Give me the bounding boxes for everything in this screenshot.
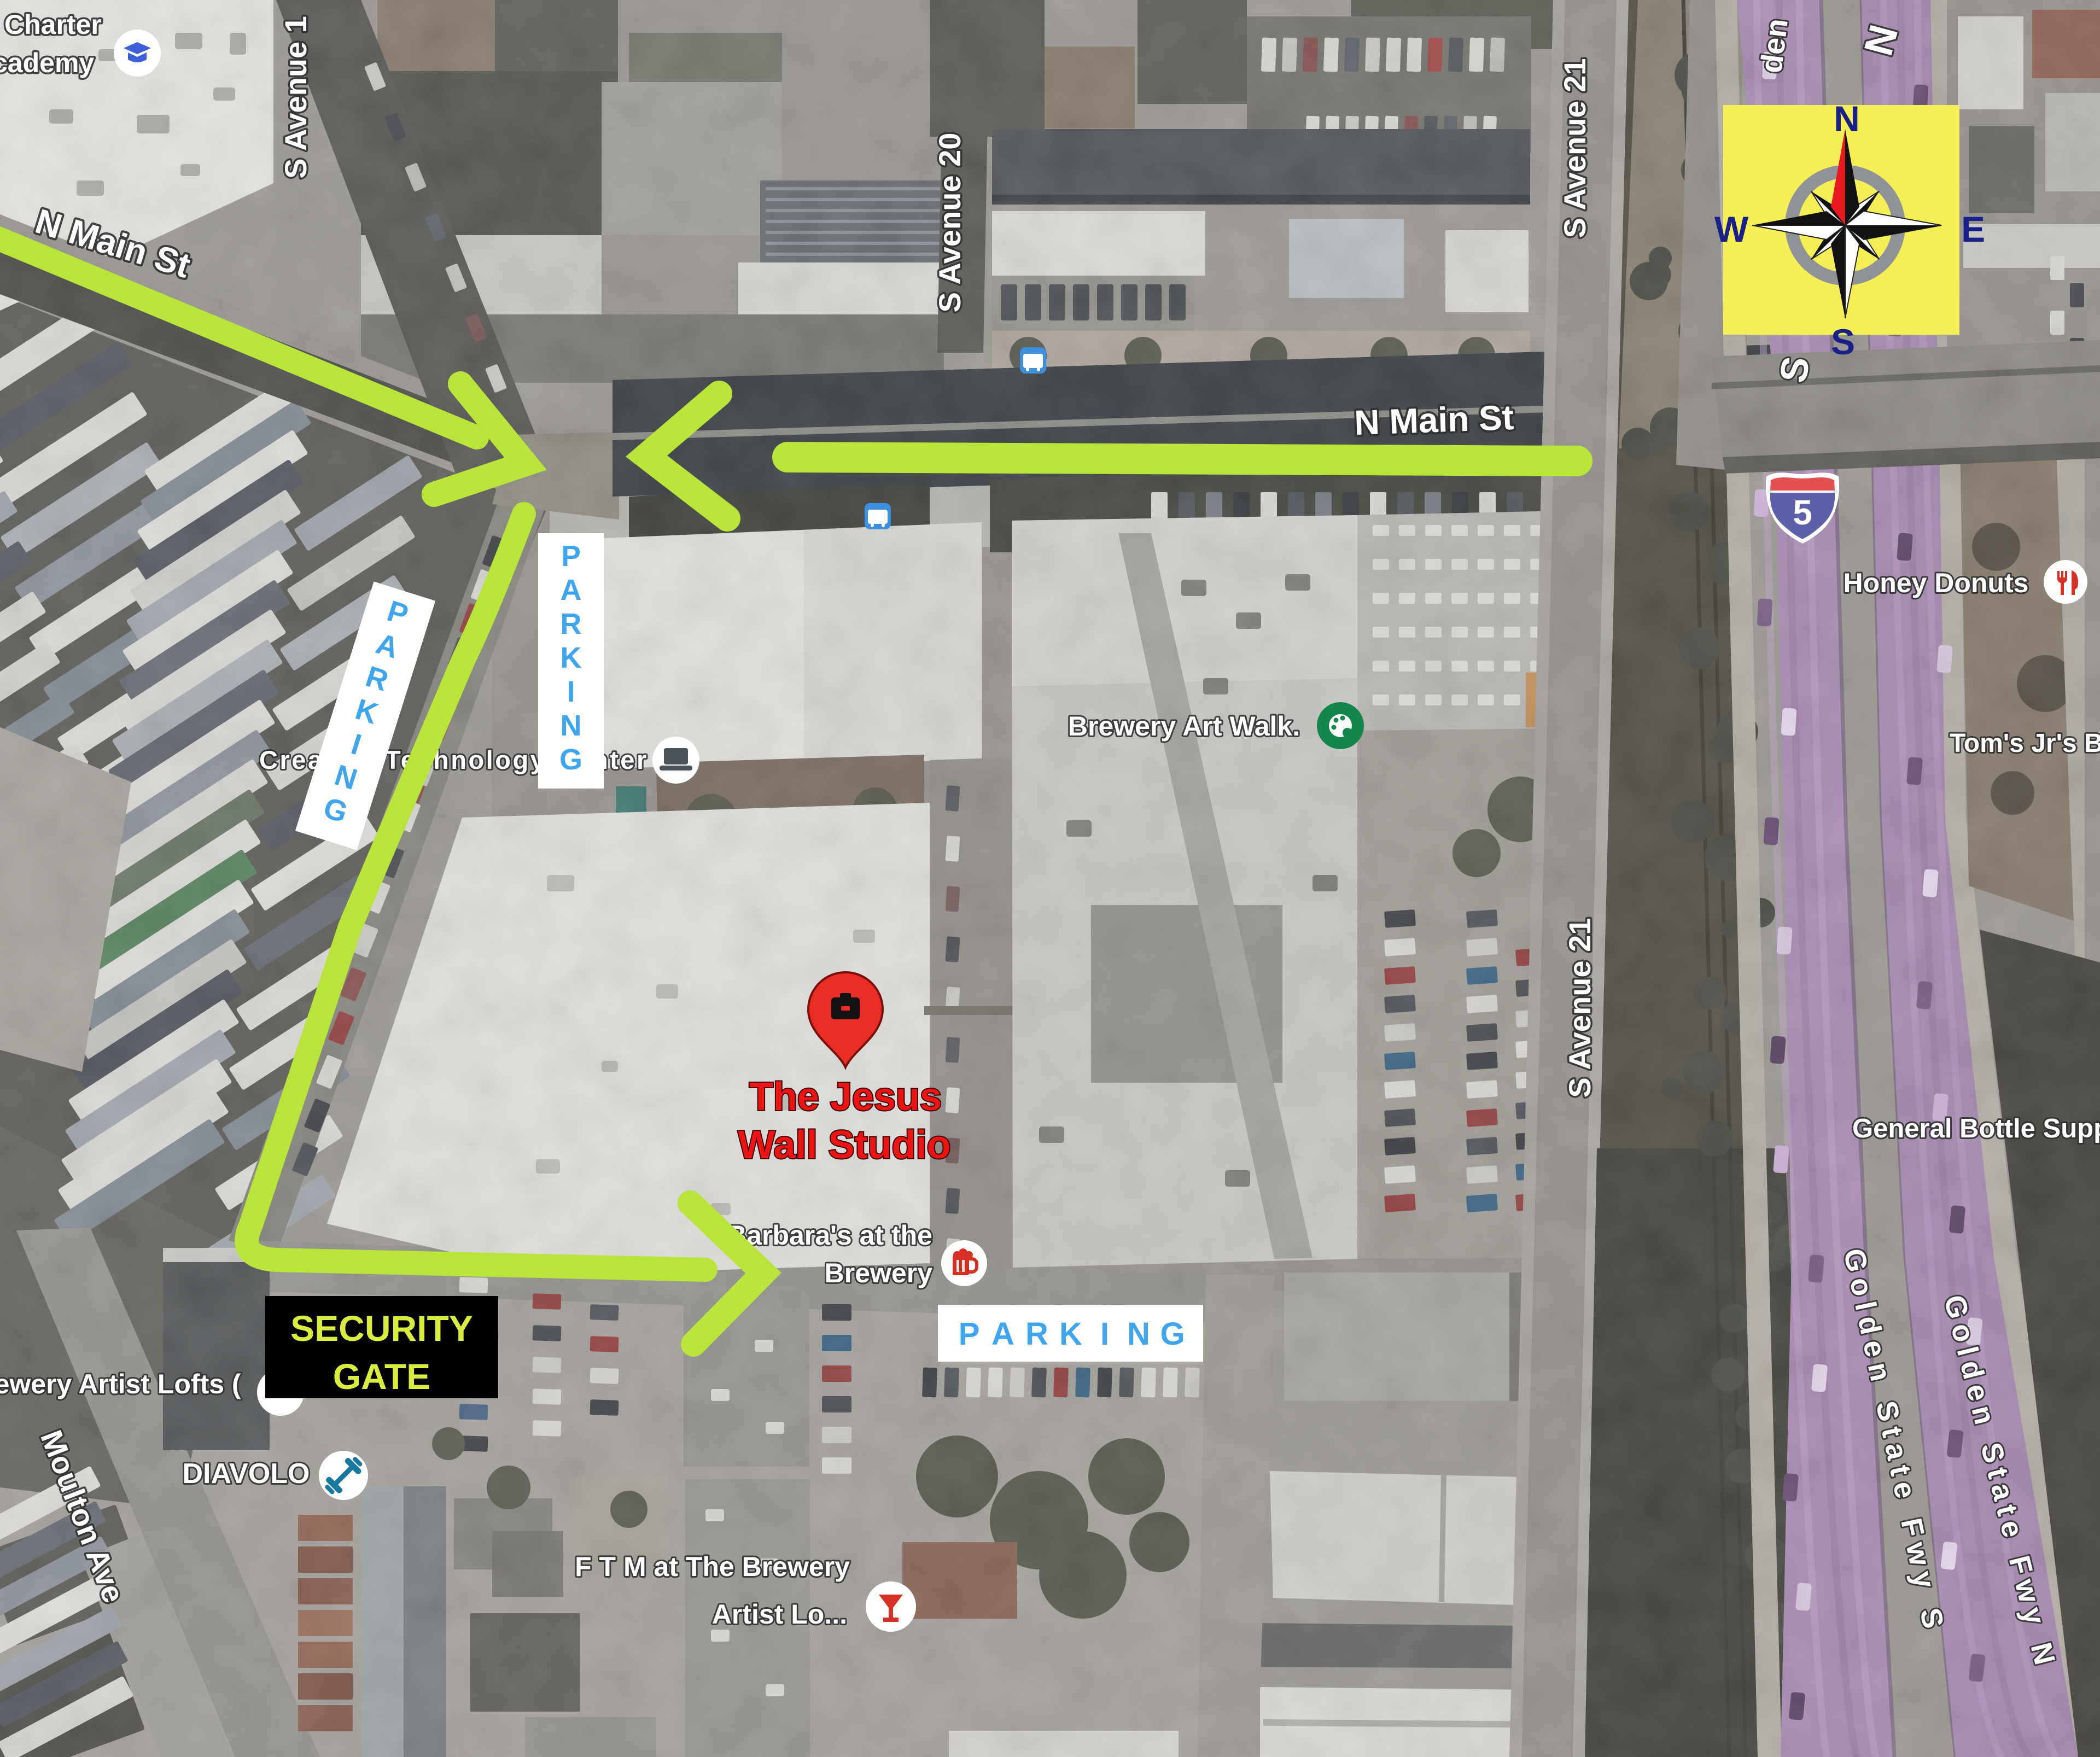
svg-text:N: N bbox=[1127, 1316, 1150, 1352]
svg-text:F T M at The Brewery: F T M at The Brewery bbox=[575, 1551, 850, 1582]
svg-text:General Bottle Supp: General Bottle Supp bbox=[1852, 1114, 2100, 1143]
svg-text:E: E bbox=[1961, 209, 1985, 249]
svg-text:S Avenue 21: S Avenue 21 bbox=[1562, 918, 1597, 1098]
svg-text:Charter: Charter bbox=[4, 9, 102, 40]
svg-text:A: A bbox=[991, 1316, 1014, 1352]
svg-text:P: P bbox=[561, 540, 581, 573]
svg-text:I: I bbox=[1100, 1316, 1109, 1352]
svg-text:Honey Donuts: Honey Donuts bbox=[1844, 568, 2029, 598]
svg-text:Artist Lo...: Artist Lo... bbox=[712, 1599, 847, 1630]
svg-text:W: W bbox=[1714, 209, 1749, 249]
svg-text:S: S bbox=[1831, 322, 1855, 362]
svg-text:P: P bbox=[959, 1316, 980, 1352]
svg-text:K: K bbox=[1059, 1316, 1082, 1352]
svg-text:5: 5 bbox=[1793, 493, 1812, 532]
svg-text:S Avenue 20: S Avenue 20 bbox=[932, 133, 967, 313]
svg-text:cademy: cademy bbox=[0, 48, 94, 78]
svg-text:Tom's Jr's B: Tom's Jr's B bbox=[1950, 729, 2100, 758]
svg-text:S Avenue 21: S Avenue 21 bbox=[1557, 59, 1592, 238]
svg-text:A: A bbox=[561, 574, 582, 606]
svg-text:K: K bbox=[561, 641, 582, 674]
svg-text:Brewery Art Walk.: Brewery Art Walk. bbox=[1068, 711, 1300, 742]
svg-text:G: G bbox=[559, 743, 582, 776]
svg-text:R: R bbox=[561, 608, 582, 640]
svg-text:The Jesus: The Jesus bbox=[749, 1075, 942, 1119]
svg-text:N: N bbox=[561, 709, 582, 742]
svg-text:GATE: GATE bbox=[333, 1356, 430, 1397]
svg-text:I: I bbox=[567, 675, 575, 708]
svg-text:Barbara's at the: Barbara's at the bbox=[727, 1220, 932, 1251]
svg-text:N Main St: N Main St bbox=[1354, 398, 1514, 442]
svg-text:G: G bbox=[1160, 1316, 1185, 1352]
svg-text:Wall Studio: Wall Studio bbox=[738, 1123, 950, 1167]
svg-text:Brewery: Brewery bbox=[825, 1258, 933, 1288]
svg-text:R: R bbox=[1025, 1316, 1048, 1352]
svg-text:S Avenue 1: S Avenue 1 bbox=[278, 16, 313, 179]
svg-text:den: den bbox=[1753, 16, 1794, 74]
svg-text:Brewery Artist Lofts (: Brewery Artist Lofts ( bbox=[0, 1369, 241, 1399]
svg-text:SECURITY: SECURITY bbox=[290, 1308, 473, 1349]
svg-text:N: N bbox=[1834, 98, 1860, 139]
svg-text:DIAVOLO: DIAVOLO bbox=[182, 1458, 310, 1490]
